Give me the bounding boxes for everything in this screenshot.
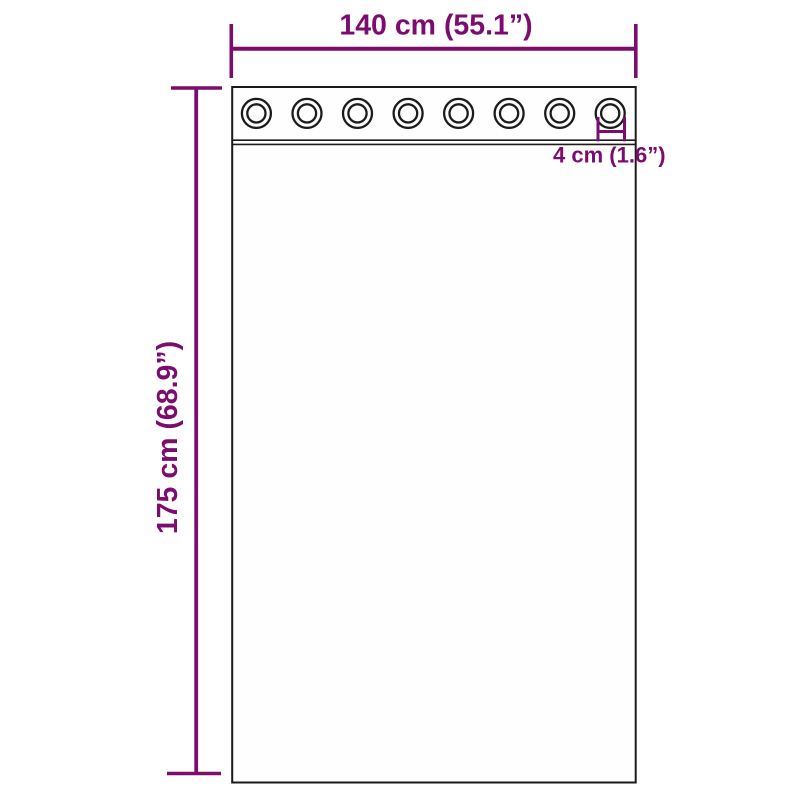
svg-text:140 cm (55.1”): 140 cm (55.1”) <box>339 10 532 42</box>
svg-text:175 cm (68.9”): 175 cm (68.9”) <box>152 341 184 534</box>
svg-text:4 cm (1.6”): 4 cm (1.6”) <box>553 142 666 167</box>
